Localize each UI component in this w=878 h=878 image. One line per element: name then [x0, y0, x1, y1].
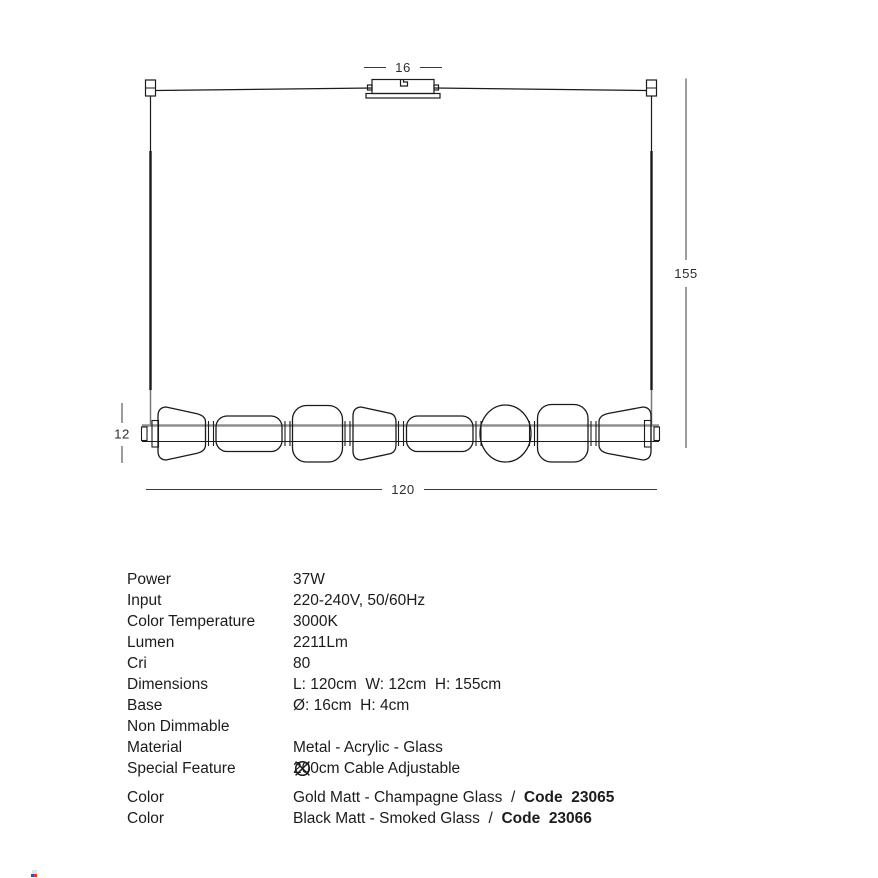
spec-label: Dimensions — [127, 675, 293, 696]
spec-value: 80 — [293, 654, 310, 675]
spec-row-color-black: Color Black Matt - Smoked Glass / Code 2… — [127, 809, 614, 830]
light-bar — [142, 421, 660, 448]
spec-label: Color — [127, 809, 293, 830]
dim-total-height: 155 — [674, 79, 698, 449]
right-cable — [434, 88, 646, 91]
glass-cone-1 — [158, 407, 206, 460]
dim-canopy-width-label: 16 — [395, 60, 411, 75]
pendant-lamp-technical-drawing: 16 155 12 120 — [0, 0, 878, 530]
canopy — [366, 80, 440, 99]
spec-row-material: Material Metal - Acrylic - Glass — [127, 738, 614, 759]
left-rod — [146, 80, 156, 426]
glass-square-1 — [293, 406, 343, 463]
scan-artifact — [31, 870, 39, 877]
spec-row-input: Input 220-240V, 50/60Hz — [127, 591, 614, 612]
spec-value: Black Matt - Smoked Glass / Code 23066 — [293, 809, 592, 830]
spec-label: Power — [127, 570, 293, 591]
spec-value: Gold Matt - Champagne Glass / Code 23065 — [293, 788, 614, 809]
spec-value: 220-240V, 50/60Hz — [293, 591, 425, 612]
spec-value: 37W — [293, 570, 325, 591]
spec-label: Cri — [127, 654, 293, 675]
suspension-cables — [156, 88, 646, 91]
right-rod — [647, 80, 657, 426]
dim-glass-height: 12 — [114, 403, 130, 463]
spec-row-base: Base Ø: 16cm H: 4cm — [127, 696, 614, 717]
glass-pill-2 — [407, 416, 474, 452]
spec-value: 3000K — [293, 612, 338, 633]
spec-value: 2211Lm — [293, 633, 348, 654]
spec-label: Color Temperature — [127, 612, 293, 633]
glass-shapes — [158, 405, 651, 463]
dim-length: 120 — [146, 482, 657, 497]
spec-label: Non Dimmable — [127, 717, 293, 738]
dim-glass-height-label: 12 — [114, 427, 130, 442]
dim-total-height-label: 155 — [674, 266, 698, 281]
spec-label: Material — [127, 738, 293, 759]
spec-row-color-temperature: Color Temperature 3000K — [127, 612, 614, 633]
spec-value: Metal - Acrylic - Glass — [293, 738, 443, 759]
spec-value: L: 120cm W: 12cm H: 155cm — [293, 675, 501, 696]
color-variant-text: Gold Matt - Champagne Glass / — [293, 789, 524, 806]
glass-pill-1 — [216, 416, 282, 452]
glass-sphere — [480, 405, 531, 462]
spec-row-power: Power 37W — [127, 570, 614, 591]
dim-length-label: 120 — [391, 482, 415, 497]
spec-value: Ø: 16cm H: 4cm — [293, 696, 409, 717]
glass-cone-2 — [353, 407, 396, 460]
spec-sheet-page: 16 155 12 120 Power 37W Input 220-240 — [0, 0, 878, 878]
glass-square-2 — [538, 405, 589, 463]
spec-row-cri: Cri 80 — [127, 654, 614, 675]
product-code: Code 23065 — [524, 789, 614, 806]
color-variant-text: Black Matt - Smoked Glass / — [293, 810, 501, 827]
spec-row-dimensions: Dimensions L: 120cm W: 12cm H: 155cm — [127, 675, 614, 696]
spec-table: Power 37W Input 220-240V, 50/60Hz Color … — [127, 570, 614, 830]
spec-label: Color — [127, 788, 293, 809]
spec-label: Special Feature — [127, 759, 293, 780]
spec-label: Input — [127, 591, 293, 612]
spec-row-color-gold: Color Gold Matt - Champagne Glass / Code… — [127, 788, 614, 809]
spec-label: Lumen — [127, 633, 293, 654]
left-cable — [156, 88, 372, 91]
bar-left-end-cap — [142, 427, 148, 441]
spec-row-special-feature: Special Feature 200cm Cable Adjustable — [127, 759, 614, 780]
color-variants: Color Gold Matt - Champagne Glass / Code… — [127, 788, 614, 830]
product-code: Code 23066 — [501, 810, 591, 827]
spec-value: 200cm Cable Adjustable — [293, 759, 460, 780]
spec-row-non-dimmable: Non Dimmable — [127, 717, 614, 738]
dim-canopy-width: 16 — [364, 60, 442, 75]
bar-right-end-cap — [654, 427, 660, 441]
spec-label: Base — [127, 696, 293, 717]
spec-row-lumen: Lumen 2211Lm — [127, 633, 614, 654]
glass-cone-3 — [599, 407, 651, 460]
canopy-hook-detail — [401, 80, 408, 86]
canopy-flange — [366, 94, 440, 99]
